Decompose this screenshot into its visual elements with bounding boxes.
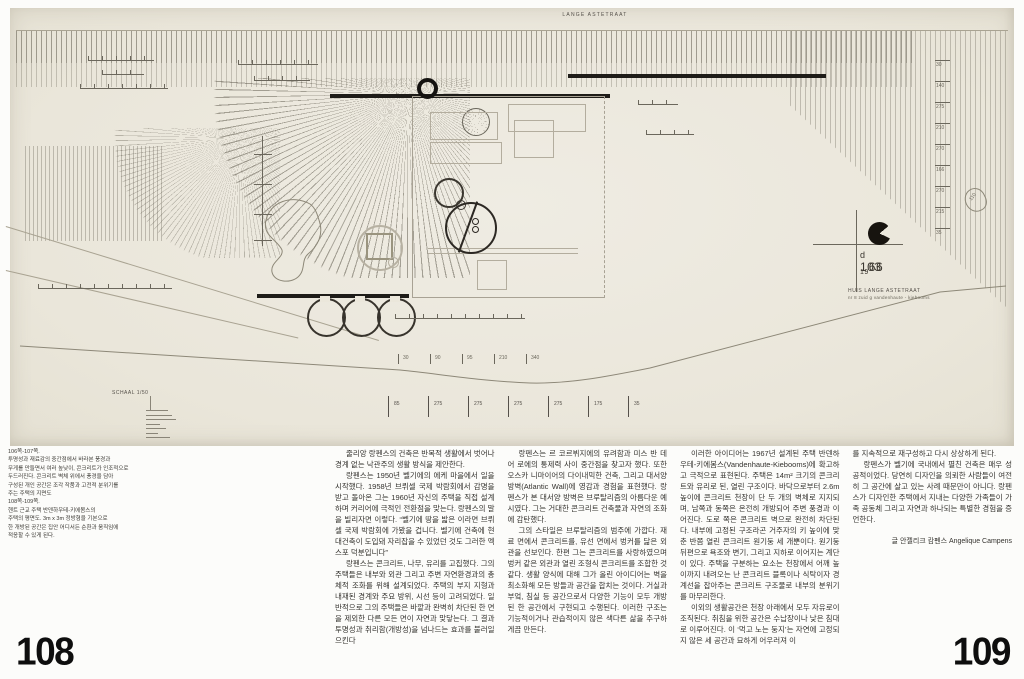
tick-cluster — [646, 130, 694, 135]
terrace-square — [366, 233, 393, 260]
legend-item-line — [146, 433, 158, 434]
dimension-value: 140 — [935, 81, 950, 89]
dimension-value: 275 — [548, 396, 588, 417]
furniture-rect — [514, 120, 554, 158]
stamp-letter: d — [860, 250, 865, 260]
dimension-value: 35 — [628, 396, 668, 417]
article-paragraph: 랑펜스가 벨기에 국내에서 펼친 건축은 매우 성공적이었다. 당연히 디자인을… — [853, 459, 1013, 525]
dimension-value: 210 — [494, 354, 526, 364]
dimension-value: 275 — [428, 396, 468, 417]
dimension-value: 175 — [588, 396, 628, 417]
dimension-row-ground: 309095210340 — [398, 354, 558, 364]
furniture-rect — [477, 260, 507, 290]
tick-cluster — [238, 60, 318, 65]
tick-cluster — [88, 56, 154, 61]
legend-item-line — [146, 415, 172, 416]
dimension-value: 270 — [935, 144, 950, 152]
dimension-value: 275 — [508, 396, 548, 417]
stamp-sub-number: 19 — [860, 269, 869, 276]
dimension-value: 275 — [935, 102, 950, 110]
tick-cluster — [638, 100, 678, 105]
article-body: 줄리앙 랑펜스의 건축은 반복적 생활에서 벗어나 경계 없는 낙관주의 생활 … — [335, 448, 1012, 646]
tick-cluster — [254, 76, 310, 81]
article-paragraph: 랑펜스는 콘크리트, 나무, 유리를 고집했다. 그의 주택들은 내부와 외관 … — [335, 558, 495, 646]
dimension-value: 166 — [935, 165, 950, 173]
dimension-value: 85 — [388, 396, 428, 417]
article-paragraph: 줄리앙 랑펜스의 건축은 반복적 생활에서 벗어나 경계 없는 낙관주의 생활 … — [335, 448, 495, 470]
article-paragraph: 이러한 아이디어는 1967년 설계된 주택 반덴하우테-키에봄스(Vanden… — [680, 448, 840, 602]
terrace-small-circle — [388, 257, 399, 268]
article-column-3: 이러한 아이디어는 1967년 설계된 주택 반덴하우테-키에봄스(Vanden… — [680, 448, 840, 646]
stamp-title: HUIS LANGE ASTETRAAT — [848, 288, 920, 294]
article-column-2: 랑펜스는 르 코르뷔지에의 유려함과 미스 반 데어 로에의 통제력 사이 중간… — [508, 448, 668, 646]
dimension-value: 215 — [935, 207, 950, 215]
tree-symbol-large — [445, 202, 497, 254]
concrete-wall-lower — [257, 294, 409, 298]
legend-item-line — [146, 424, 160, 425]
dimension-value: 30 — [935, 60, 950, 68]
pond-outline — [265, 200, 320, 282]
tree-circle — [342, 298, 381, 337]
stamp-crosshair-vertical — [856, 210, 857, 292]
tree-circle-gap — [320, 296, 330, 302]
article-column-4-paragraphs: 를 지속적으로 재구성하고 다시 상상하게 된다.랑펜스가 벨기에 국내에서 펼… — [853, 448, 1013, 525]
tick-cluster — [80, 84, 168, 89]
dimension-value: 35 — [935, 228, 950, 236]
magazine-spread: LANGE ASTETRAAT — [0, 0, 1024, 679]
article-paragraph: 랑펜스는 르 코르뷔지에의 유려함과 미스 반 데어 로에의 통제력 사이 중간… — [508, 448, 668, 525]
article-column-1: 줄리앙 랑펜스의 건축은 반복적 생활에서 벗어나 경계 없는 낙관주의 생활 … — [335, 448, 495, 646]
tick-dash — [254, 214, 272, 215]
page-number-left: 108 — [16, 630, 73, 675]
concrete-wall-upper-right — [568, 74, 826, 78]
article-column-4: 를 지속적으로 재구성하고 다시 상상하게 된다.랑펜스가 벨기에 국내에서 펼… — [853, 448, 1013, 646]
legend-items — [146, 410, 190, 442]
dimension-value: 210 — [935, 123, 950, 131]
dimension-value: 340 — [526, 354, 558, 364]
site-plan-drawing: LANGE ASTETRAAT — [10, 8, 1014, 446]
plan-dot — [472, 226, 479, 233]
stamp-subtitle: nr 8 zuid g vandenhaute - kiebooms — [848, 295, 930, 300]
tick-dash — [254, 154, 272, 155]
ground-line — [20, 286, 1006, 383]
tree-circle-gap — [390, 296, 400, 302]
dimension-value: 90 — [430, 354, 462, 364]
legend-item-line — [146, 437, 170, 438]
tick-dash — [254, 184, 272, 185]
article-paragraph: 를 지속적으로 재구성하고 다시 상상하게 된다. — [853, 448, 1013, 459]
tree-ring-bold — [417, 78, 438, 99]
scale-label: SCHAAL 1/50 — [112, 390, 148, 396]
margin-caption: 106쪽-107쪽. 투명성과 재료감의 중간점에서 바라본 풍경과 무게를 만… — [8, 448, 148, 540]
article-paragraph: 랑펜스는 1950년 벨기에의 에케 마을에서 일을 시작했다. 1958년 브… — [335, 470, 495, 558]
dimension-value: 95 — [462, 354, 494, 364]
tick-dash — [254, 240, 272, 241]
tick-cluster — [102, 70, 144, 75]
dimension-value: 275 — [468, 396, 508, 417]
furniture-rect — [430, 142, 502, 164]
north-arrow-icon — [868, 222, 891, 245]
stamp-crosshair-horizontal — [813, 244, 903, 245]
dimension-column-right: 3014027521027016627021535 — [935, 60, 965, 249]
legend-line — [150, 396, 151, 410]
article-byline: 글 안젤리크 캄펜스 Angelique Campens — [853, 536, 1013, 547]
legend-item-line — [146, 410, 168, 411]
furniture-rect — [428, 248, 578, 254]
tick-cluster — [38, 284, 172, 289]
page-number-right: 109 — [946, 630, 1010, 675]
stamp-year: 66 — [869, 260, 883, 274]
tree-circle-gap — [355, 296, 365, 302]
legend-item-line — [146, 419, 176, 420]
tick-cluster-vertical — [262, 136, 263, 246]
article-paragraph: 그의 스타일은 브루탈리즘의 범주에 가깝다. 재료 면에서 콘크리트를, 유선… — [508, 525, 668, 635]
dimension-value: 30 — [398, 354, 430, 364]
legend-item-line — [146, 428, 166, 429]
dimension-row-base: 8527527527527517535 — [388, 396, 668, 417]
tick-cluster — [395, 314, 525, 319]
dimension-value: 270 — [935, 186, 950, 194]
tree-circle — [307, 298, 346, 337]
article-paragraph: 이외의 생활공간은 천장 아래에서 모두 자유로이 조직된다. 취침을 위한 공… — [680, 602, 840, 646]
furniture-rect — [430, 112, 498, 140]
stamp-number: 1031966 — [860, 260, 869, 274]
plan-dot — [472, 218, 479, 225]
